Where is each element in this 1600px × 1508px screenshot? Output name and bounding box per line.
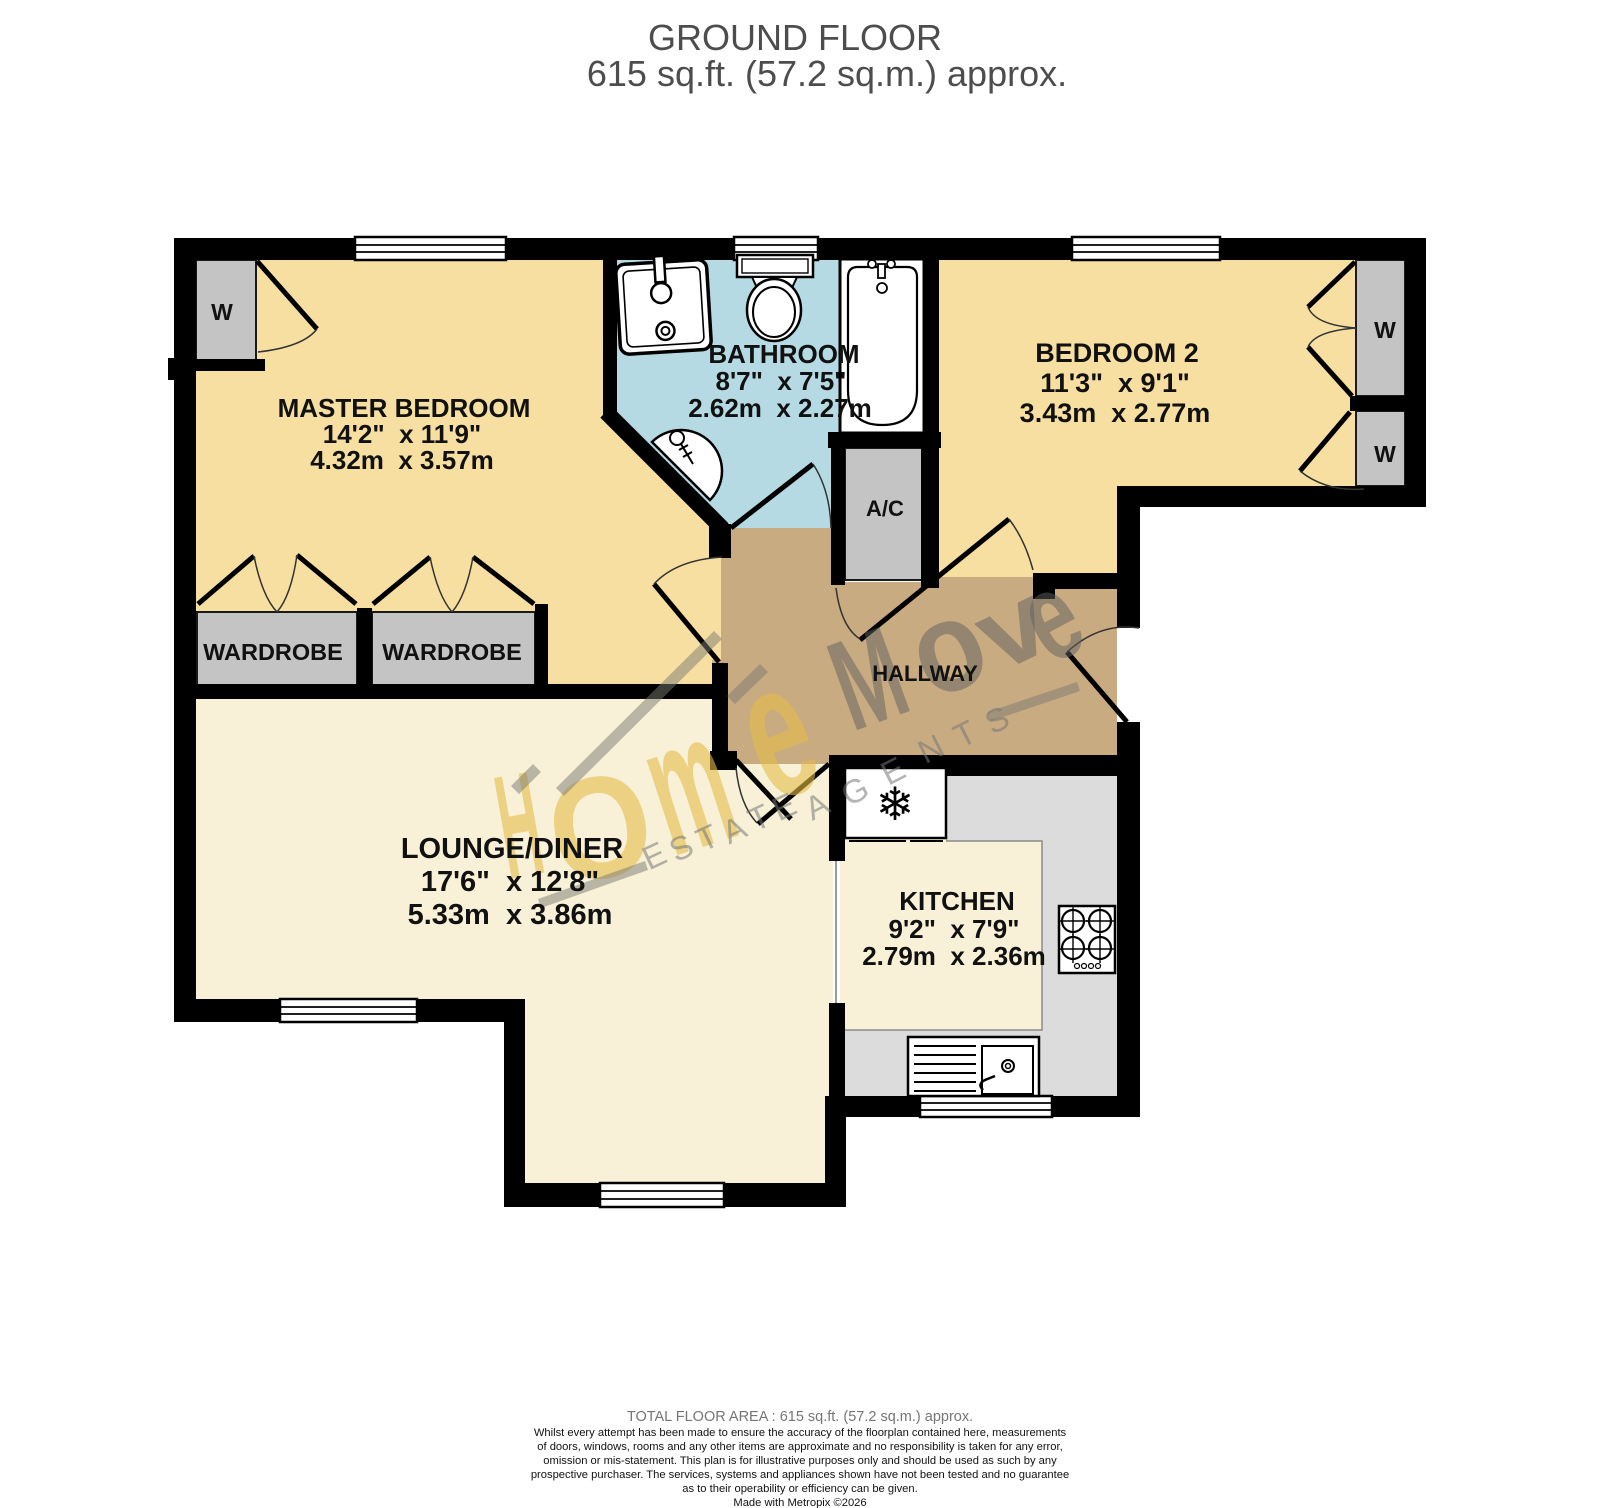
svg-text:3.43m x 2.77m: 3.43m x 2.77m	[1020, 398, 1211, 428]
svg-text:GROUND FLOOR: GROUND FLOOR	[648, 17, 942, 58]
svg-text:4.32m x 3.57m: 4.32m x 3.57m	[310, 445, 494, 475]
svg-text:9'2" x 7'9": 9'2" x 7'9"	[889, 914, 1020, 944]
svg-text:W: W	[1374, 317, 1396, 343]
svg-text:Made with Metropix ©2026: Made with Metropix ©2026	[733, 1497, 866, 1508]
svg-text:of doors, windows, rooms and a: of doors, windows, rooms and any other i…	[537, 1441, 1062, 1453]
svg-text:prospective purchaser. The ser: prospective purchaser. The services, sys…	[531, 1469, 1069, 1481]
svg-text:615 sq.ft. (57.2 sq.m.) approx: 615 sq.ft. (57.2 sq.m.) approx.	[587, 53, 1067, 94]
svg-text:8'7" x 7'5": 8'7" x 7'5"	[716, 366, 847, 396]
svg-text:BATHROOM: BATHROOM	[708, 339, 859, 369]
svg-text:W: W	[211, 299, 233, 325]
svg-text:Whilst every attempt has been: Whilst every attempt has been made to en…	[534, 1427, 1067, 1439]
svg-text:as to their operability or eff: as to their operability or efficiency ca…	[682, 1483, 917, 1495]
svg-text:2.79m x 2.36m: 2.79m x 2.36m	[862, 941, 1046, 971]
svg-text:HALLWAY: HALLWAY	[872, 661, 978, 686]
svg-text:omission or mis-statement. Thi: omission or mis-statement. This plan is …	[543, 1455, 1057, 1467]
svg-text:BEDROOM 2: BEDROOM 2	[1035, 338, 1199, 368]
svg-text:WARDROBE: WARDROBE	[382, 639, 522, 665]
svg-text:2.62m x 2.27m: 2.62m x 2.27m	[688, 393, 872, 423]
svg-text:11'3" x 9'1": 11'3" x 9'1"	[1040, 368, 1190, 398]
svg-text:KITCHEN: KITCHEN	[899, 886, 1015, 916]
svg-text:17'6" x 12'8": 17'6" x 12'8"	[421, 866, 599, 898]
svg-text:A/C: A/C	[866, 496, 904, 521]
svg-text:W: W	[1374, 441, 1396, 467]
svg-text:TOTAL FLOOR AREA : 615 sq.ft.: TOTAL FLOOR AREA : 615 sq.ft. (57.2 sq.m…	[627, 1409, 973, 1425]
svg-text:LOUNGE/DINER: LOUNGE/DINER	[401, 833, 623, 865]
svg-text:WARDROBE: WARDROBE	[203, 639, 343, 665]
svg-text:5.33m x 3.86m: 5.33m x 3.86m	[408, 899, 613, 931]
